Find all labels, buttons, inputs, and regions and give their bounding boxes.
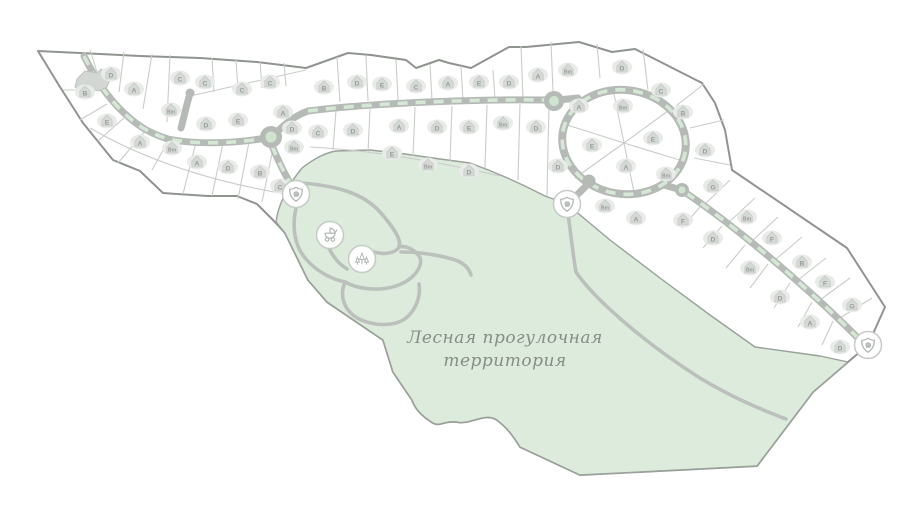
plot-type-label: G	[849, 303, 854, 310]
plot-house-f[interactable]: F	[815, 275, 835, 290]
plot-type-label: F	[681, 218, 685, 225]
plot-house-a[interactable]: A	[626, 211, 646, 226]
plot-house-a[interactable]: A	[528, 68, 548, 83]
plot-type-label: A	[281, 110, 286, 117]
plot-house-bm[interactable]: Bm	[558, 63, 578, 78]
plot-type-label: C	[203, 80, 208, 87]
plot-house-e[interactable]: E	[97, 114, 117, 129]
plot-type-label: D	[507, 80, 512, 87]
plot-house-c[interactable]: C	[260, 75, 280, 90]
plot-type-label: D	[435, 125, 440, 132]
plot-house-a[interactable]: A	[130, 135, 150, 150]
plot-type-label: Bm	[168, 147, 177, 153]
plot-type-label: C	[268, 80, 273, 87]
plot-house-bm[interactable]: Bm	[162, 141, 182, 156]
plot-type-label: A	[577, 104, 582, 111]
plot-type-label: E	[105, 119, 110, 126]
plot-type-label: Bm	[601, 205, 610, 211]
plot-type-label: Bm	[746, 267, 755, 273]
forest-area-label-line1: Лесная прогулочная	[406, 328, 603, 348]
plot-house-c[interactable]: C	[195, 75, 215, 90]
plot-house-d[interactable]: D	[770, 290, 790, 305]
junction-south	[583, 175, 596, 188]
plot-house-d[interactable]: D	[830, 340, 850, 355]
roundabout-center	[544, 91, 564, 111]
plot-house-d[interactable]: D	[459, 164, 479, 179]
plot-type-label: C	[178, 76, 183, 83]
plot-type-label: A	[132, 87, 137, 94]
plot-house-a[interactable]: A	[187, 155, 207, 170]
plot-type-label: D	[204, 122, 209, 129]
plot-type-label: E	[390, 151, 395, 158]
plot-house-b[interactable]: B	[792, 255, 812, 270]
plot-type-label: D	[290, 126, 295, 133]
plot-type-label: A	[624, 164, 629, 171]
plot-type-label: Bm	[564, 69, 573, 75]
plot-type-label: B	[800, 260, 805, 267]
plot-house-bm[interactable]: Bm	[656, 167, 676, 182]
plot-house-e[interactable]: E	[382, 146, 402, 161]
plot-type-label: Bm	[743, 216, 752, 222]
plot-type-label: B	[258, 170, 263, 177]
plot-type-label: C	[659, 88, 664, 95]
plot-house-d[interactable]: D	[695, 143, 715, 158]
plot-house-g[interactable]: G	[842, 298, 862, 313]
plot-house-f[interactable]: F	[673, 213, 693, 228]
plot-house-b[interactable]: B	[75, 85, 95, 100]
map-marker-shield-leaf[interactable]	[554, 191, 581, 218]
plot-house-d[interactable]: D	[427, 120, 447, 135]
plot-house-bm[interactable]: Bm	[493, 116, 513, 131]
plot-house-g[interactable]: G	[703, 179, 723, 194]
plot-type-label: Bm	[662, 173, 671, 179]
plot-type-label: A	[536, 73, 541, 80]
plot-type-label: G	[710, 184, 715, 191]
plot-house-a[interactable]: A	[273, 105, 293, 120]
plot-type-label: E	[467, 125, 472, 132]
map-marker-stroller[interactable]	[317, 222, 344, 249]
plot-house-d[interactable]: D	[548, 159, 568, 174]
plot-house-f[interactable]: F	[762, 231, 782, 246]
map-marker-shield-leaf[interactable]	[283, 181, 310, 208]
plot-house-a[interactable]: A	[124, 82, 144, 97]
map-marker-trees[interactable]	[349, 246, 376, 273]
plot-type-label: E	[236, 118, 241, 125]
plot-type-label: B	[681, 110, 686, 117]
plot-house-b[interactable]: B	[673, 105, 693, 120]
plot-house-d[interactable]: D	[282, 121, 302, 136]
plot-type-label: D	[711, 236, 716, 243]
site-plan-map: BDACCCCEBmDEADABmADBBmCBDECAEDABmDCBCDAD…	[0, 0, 918, 513]
plot-house-c[interactable]: C	[170, 71, 190, 86]
plot-type-label: A	[397, 124, 402, 131]
plot-house-d[interactable]: D	[343, 123, 363, 138]
plot-house-d[interactable]: D	[196, 117, 216, 132]
plot-type-label: D	[556, 164, 561, 171]
plot-house-bm[interactable]: Bm	[737, 210, 757, 225]
plot-house-bm[interactable]: Bm	[284, 140, 304, 155]
plot-house-c[interactable]: C	[232, 82, 252, 97]
plot-type-label: C	[240, 87, 245, 94]
plot-type-label: C	[316, 130, 321, 137]
plot-house-d[interactable]: D	[499, 75, 519, 90]
plot-house-bm[interactable]: Bm	[418, 158, 438, 173]
plot-type-label: D	[838, 345, 843, 352]
plot-house-bm[interactable]: Bm	[613, 99, 633, 114]
map-marker-shield-leaf[interactable]	[855, 332, 882, 359]
plot-house-bm[interactable]: Bm	[595, 199, 615, 214]
plot-house-a[interactable]: A	[800, 315, 820, 330]
plot-type-label: C	[278, 184, 283, 191]
plot-house-b[interactable]: B	[314, 80, 334, 95]
plot-house-a[interactable]: A	[389, 119, 409, 134]
plot-type-label: Bm	[424, 164, 433, 170]
plot-type-label: D	[109, 72, 114, 79]
plot-type-label: Bm	[619, 105, 628, 111]
plot-type-label: A	[446, 81, 451, 88]
plot-type-label: B	[83, 90, 88, 97]
plot-house-e[interactable]: E	[643, 131, 663, 146]
plot-house-e[interactable]: E	[469, 75, 489, 90]
plot-house-d[interactable]: D	[347, 75, 367, 90]
plot-type-label: E	[651, 136, 656, 143]
plot-type-label: D	[467, 169, 472, 176]
plot-type-label: E	[380, 82, 385, 89]
plot-type-label: F	[770, 236, 774, 243]
plot-house-d[interactable]: D	[612, 60, 632, 75]
plot-type-label: E	[590, 143, 595, 150]
plot-type-label: D	[351, 128, 356, 135]
plot-house-e[interactable]: E	[372, 77, 392, 92]
plot-house-d[interactable]: D	[526, 120, 546, 135]
plot-type-label: Bm	[290, 146, 299, 152]
plot-house-bm[interactable]: Bm	[161, 103, 181, 118]
plot-type-label: B	[322, 85, 327, 92]
plot-type-label: A	[634, 216, 639, 223]
plot-type-label: D	[703, 148, 708, 155]
plot-type-label: Bm	[499, 122, 508, 128]
plot-type-label: D	[620, 65, 625, 72]
plot-house-c[interactable]: C	[651, 83, 671, 98]
plot-house-d[interactable]: D	[218, 160, 238, 175]
plot-house-d[interactable]: D	[101, 67, 121, 82]
plot-type-label: D	[778, 295, 783, 302]
plot-type-label: Bm	[167, 109, 176, 115]
plot-house-e[interactable]: E	[228, 113, 248, 128]
plot-type-label: D	[355, 80, 360, 87]
plot-house-e[interactable]: E	[459, 120, 479, 135]
plot-type-label: D	[226, 165, 231, 172]
plot-house-a[interactable]: A	[438, 76, 458, 91]
plot-house-e[interactable]: E	[582, 138, 602, 153]
plot-house-a[interactable]: A	[616, 159, 636, 174]
plot-house-bm[interactable]: Bm	[740, 261, 760, 276]
plot-type-label: D	[534, 125, 539, 132]
roundabout-east	[675, 183, 689, 197]
plot-house-b[interactable]: B	[250, 165, 270, 180]
plot-type-label: A	[195, 160, 200, 167]
plot-house-a[interactable]: A	[569, 99, 589, 114]
plot-house-c[interactable]: C	[406, 79, 426, 94]
site-plan-page: BDACCCCEBmDEADABmADBBmCBDECAEDABmDCBCDAD…	[0, 0, 918, 513]
plot-house-c[interactable]: C	[308, 125, 328, 140]
plot-type-label: E	[477, 80, 482, 87]
roundabout-west	[260, 126, 282, 148]
plot-type-label: C	[414, 84, 419, 91]
forest-area-label-line2: территория	[443, 351, 566, 371]
plot-type-label: F	[823, 280, 827, 287]
plot-type-label: A	[138, 140, 143, 147]
plot-type-label: A	[808, 320, 813, 327]
plot-house-d[interactable]: D	[703, 231, 723, 246]
